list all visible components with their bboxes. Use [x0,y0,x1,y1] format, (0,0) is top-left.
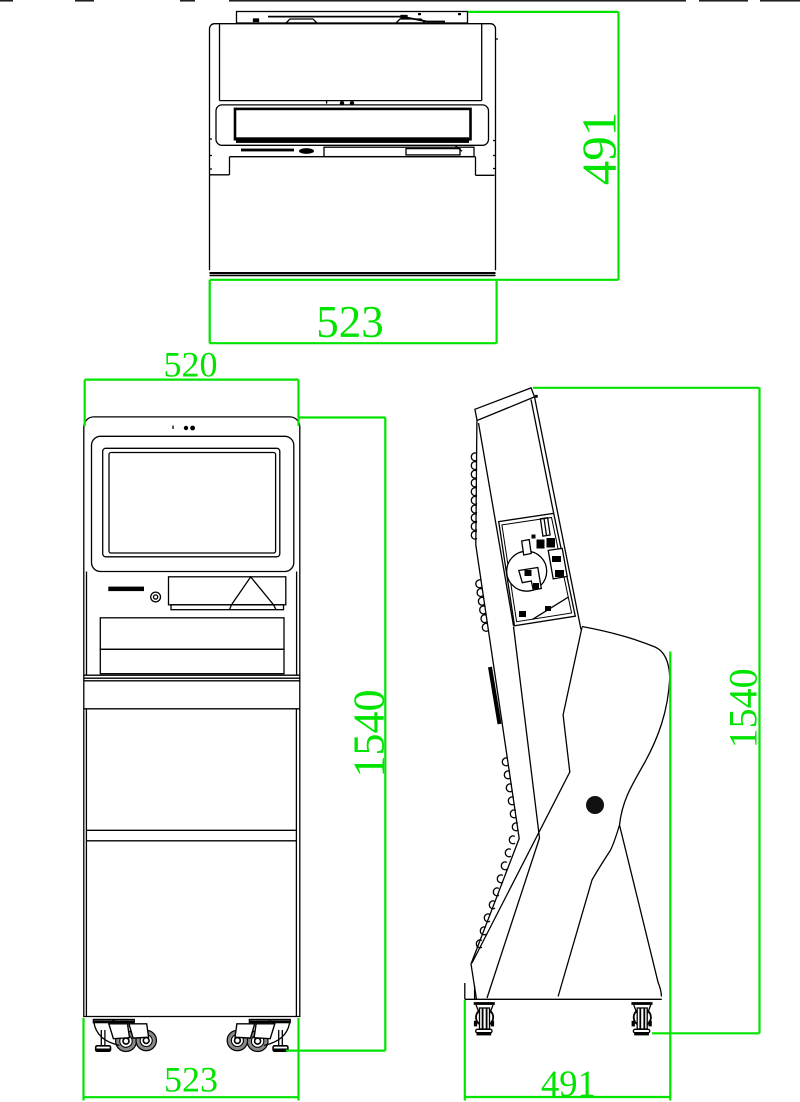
svg-text:491: 491 [572,112,627,186]
svg-text:491: 491 [541,1063,596,1102]
svg-text:520: 520 [164,345,218,385]
svg-text:523: 523 [164,1060,218,1100]
svg-text:1540: 1540 [345,690,394,778]
svg-text:523: 523 [316,297,384,347]
svg-text:1540: 1540 [721,668,766,748]
